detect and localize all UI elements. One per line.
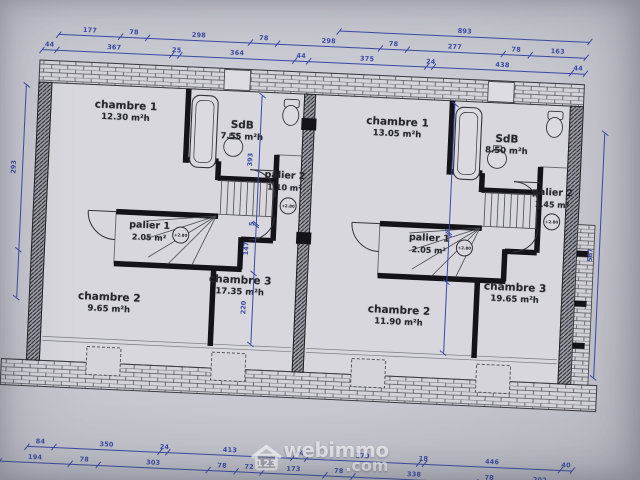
dimension-segment: 40 — [560, 459, 573, 472]
dimension-segment: 78 — [324, 464, 353, 477]
dimension-segment: 44 — [42, 38, 56, 51]
dimension-segment: 173 — [262, 462, 325, 477]
toilet-icon — [546, 111, 563, 138]
level-value: +2.80 — [545, 219, 558, 225]
dimension-segment: 177 — [59, 23, 121, 38]
dimension-segment: 44 — [294, 50, 308, 63]
dimension-segment: 367 — [56, 39, 172, 56]
dimension-segment: 375 — [308, 50, 426, 67]
dimension-segment: 446 — [424, 453, 560, 471]
room-label-right-sdb: SdB 8.50 m²h — [461, 131, 552, 158]
level-value: +2.80 — [281, 203, 294, 209]
dimension-segment: 147 — [243, 224, 257, 272]
dimension-segment: 413 — [167, 441, 293, 459]
dimension-segment: 298 — [277, 33, 380, 50]
dimension-segment: 78 — [250, 32, 277, 45]
dimension-segment: 364 — [180, 44, 295, 61]
dimension-segment: 298 — [147, 27, 250, 44]
dimension-segment: 78 — [502, 43, 529, 56]
dimension-segment: 277 — [407, 39, 503, 55]
dimension-segment: 78 — [120, 26, 147, 39]
dimension-segment: 338 — [353, 466, 476, 480]
dimension-segment: 163 — [529, 44, 586, 59]
dimension-segment: 438 — [433, 56, 571, 74]
dimension-segment: 44 — [571, 62, 585, 75]
dimension-segment: 202 — [503, 472, 577, 480]
room-label-right-palier2: palier 2 1.45 m² — [512, 187, 593, 212]
floor-plan: chambre 1 12.30 m²h SdB 7.55 m²h palier … — [25, 60, 584, 414]
dimension-segment: 78 — [380, 37, 407, 50]
dimension-segment: 84 — [27, 435, 53, 448]
plan-sheet: chambre 1 12.30 m²h SdB 7.55 m²h palier … — [0, 0, 640, 480]
dimension-segment — [435, 233, 449, 281]
dimension-segment: 303 — [98, 454, 208, 471]
dimension-segment: 78 — [70, 453, 99, 466]
photo-of-floor-plan: chambre 1 12.30 m²h SdB 7.55 m²h palier … — [0, 0, 640, 480]
dimension-segment: 72 — [236, 460, 263, 473]
dimension-segment: 44 — [293, 447, 307, 460]
level-value: +2.80 — [458, 245, 471, 251]
room-label-left-sdb: SdB 7.55 m²h — [197, 117, 288, 144]
dimension-segment: 78 — [475, 471, 504, 480]
dimension-segment: 370 — [306, 447, 419, 464]
level-value: +2.80 — [174, 232, 187, 238]
dimension-segment — [5, 249, 19, 297]
dimension-segment: 194 — [0, 450, 70, 465]
dimension-segment: 78 — [208, 459, 237, 472]
dimension-segment: 350 — [53, 436, 160, 453]
